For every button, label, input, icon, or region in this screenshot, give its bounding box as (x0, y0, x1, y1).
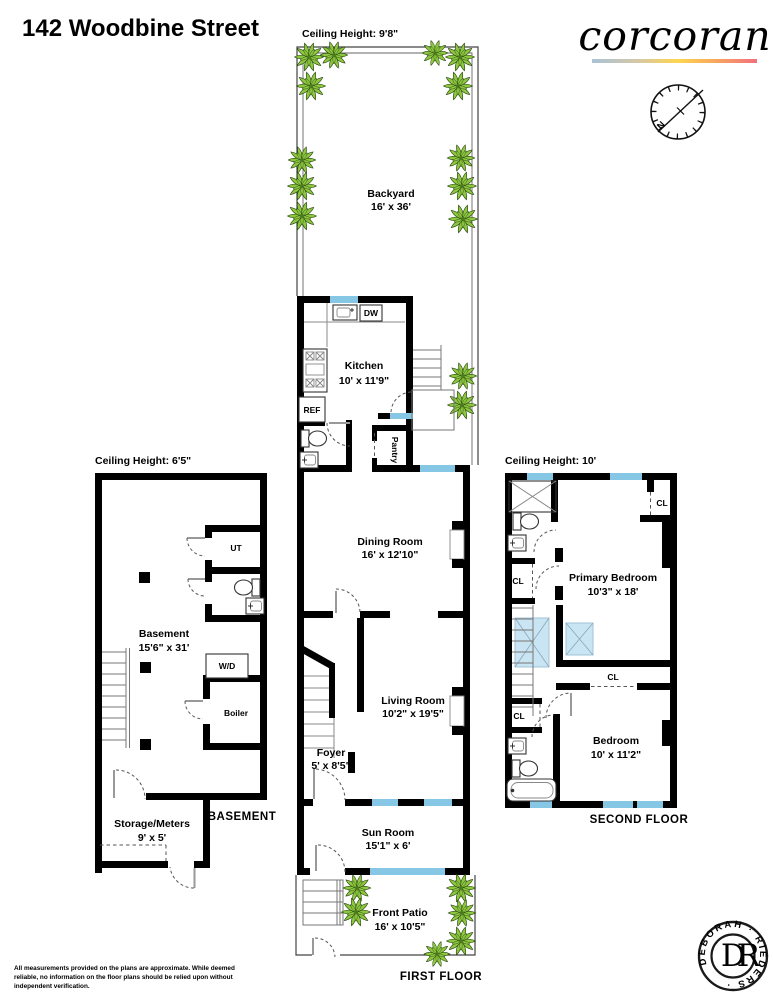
refrigerator-label: REF (304, 405, 321, 415)
basement-utility-room: UT (187, 538, 242, 556)
bush-icon (448, 899, 476, 926)
closet-hall-strip: CL (591, 672, 636, 687)
bush-icon (449, 205, 478, 234)
dishwasher-label: DW (364, 308, 379, 318)
bush-icon (342, 898, 371, 927)
bush-icon (424, 941, 450, 967)
compass-icon: N (651, 85, 705, 139)
closet-label: CL (513, 711, 524, 721)
floor-plan-page: 142 Woodbine Street corcoran N Ceiling H… (0, 0, 773, 1000)
bedroom-dims: 10' x 11'2" (591, 749, 641, 761)
first-floor-label: FIRST FLOOR (400, 971, 482, 983)
living-room-dims: 10'2" x 19'5" (382, 708, 444, 720)
brand-logo: corcoran (578, 12, 771, 60)
basement-floor-label: BASEMENT (208, 811, 277, 823)
toilet-icon (513, 513, 539, 530)
foyer-label: Foyer (317, 747, 346, 759)
first-floor-ceiling-label: Ceiling Height: 9'8" (302, 28, 398, 40)
toilet-icon (235, 579, 261, 596)
brand-stamp: DEBORAH · RIEDERS · DR (697, 919, 768, 990)
second-floor-plan: Ceiling Height: 10' (505, 455, 689, 826)
column (140, 739, 151, 750)
kitchen-dims: 10' x 11'9" (339, 375, 389, 387)
kitchen-label: Kitchen (345, 360, 384, 372)
foyer-dims: 5' x 8'5" (311, 760, 350, 772)
basement-bathroom (188, 579, 264, 614)
pantry-label: Pantry (390, 437, 400, 464)
backyard-fence-inner (303, 53, 472, 465)
washer-dryer-label: W/D (219, 661, 236, 671)
bathtub-icon (507, 779, 556, 801)
bedroom-label: Bedroom (593, 735, 639, 747)
primary-bedroom-label: Primary Bedroom (569, 572, 657, 584)
sink-icon (300, 452, 318, 468)
column (139, 572, 150, 583)
stove-icon (303, 349, 327, 392)
boiler-room: Boiler (185, 701, 249, 719)
primary-bedroom-door-arc (536, 566, 559, 589)
storage-room: Storage/Meters 9' x 5' (100, 770, 195, 888)
disclaimer-line-2: reliable, no information on the floor pl… (14, 974, 234, 981)
storage-dims: 9' x 5' (138, 832, 166, 844)
bush-icon (288, 172, 317, 201)
second-floor-ceiling-label: Ceiling Height: 10' (505, 455, 596, 467)
closet-label: CL (607, 672, 618, 682)
front-patio: Front Patio 16' x 10'5" (296, 874, 476, 967)
skylight-icon (515, 618, 549, 667)
storage-label: Storage/Meters (114, 818, 190, 830)
bush-icon (297, 72, 326, 101)
dishwasher-box: DW (360, 305, 382, 321)
sun-room-dims: 15'1" x 6' (365, 840, 410, 852)
toilet-icon (512, 760, 538, 777)
backyard-label: Backyard (367, 188, 414, 200)
shower-icon (509, 481, 556, 512)
boiler-label: Boiler (224, 708, 249, 718)
disclaimer-line-1: All measurements provided on the plans a… (14, 965, 235, 972)
patio-steps (303, 880, 343, 925)
sink-icon (508, 738, 526, 754)
utility-label: UT (230, 543, 242, 553)
bush-icon (288, 202, 317, 231)
floor-plan-canvas: 142 Woodbine Street corcoran N Ceiling H… (0, 0, 773, 1000)
bush-icon (343, 874, 371, 901)
bush-icon (447, 874, 476, 903)
first-floor-plan: DW REF (296, 296, 482, 983)
column (140, 662, 151, 673)
hall-door-arc (336, 589, 360, 613)
patio-gate-arc (315, 938, 335, 957)
bush-icon (449, 362, 477, 389)
second-floor-bathroom-top (508, 481, 556, 552)
bush-icon (288, 146, 316, 173)
closet-left-upper: CL (512, 564, 532, 598)
page-title: 142 Woodbine Street (22, 15, 259, 42)
toilet-icon (301, 430, 327, 447)
living-room-label: Living Room (381, 695, 445, 707)
stairs-basement (102, 648, 130, 748)
pantry: Pantry (375, 433, 401, 463)
basement-room-dims: 15'6" x 31' (139, 642, 190, 654)
bathroom-door-arc (532, 715, 554, 737)
kitchen-sink-icon (333, 305, 357, 320)
second-floor-label: SECOND FLOOR (590, 814, 689, 826)
dining-room-label: Dining Room (357, 536, 422, 548)
basement-plan: Ceiling Height: 6'5" UT (95, 455, 276, 888)
backyard-dims: 16' x 36' (371, 201, 411, 213)
deck-stairs (412, 345, 454, 430)
disclaimer-line-3: independent verification. (14, 983, 90, 990)
front-door-arc (316, 769, 345, 800)
refrigerator-box: REF (299, 397, 325, 422)
washer-dryer-box: W/D (206, 654, 248, 678)
front-patio-label: Front Patio (372, 907, 427, 919)
bush-icon (444, 72, 473, 101)
skylight-icon (566, 623, 593, 655)
bush-icon (447, 927, 476, 956)
closet-top-right: CL (651, 492, 668, 515)
sink-icon (246, 598, 264, 614)
primary-bedroom-dims: 10'3" x 18' (588, 586, 639, 598)
basement-ceiling-label: Ceiling Height: 6'5" (95, 455, 191, 467)
first-floor-bathroom (300, 423, 350, 468)
closet-label: CL (656, 498, 667, 508)
sun-room-label: Sun Room (362, 827, 415, 839)
dining-room-dims: 16' x 12'10" (362, 549, 419, 561)
closet-label: CL (512, 576, 523, 586)
stairs-first-floor (302, 645, 335, 758)
brand-gradient-bar (592, 59, 757, 63)
basement-room-label: Basement (139, 628, 190, 640)
bush-icon (422, 40, 448, 66)
bush-icon (320, 41, 348, 68)
sink-icon (508, 535, 526, 551)
front-patio-dims: 16' x 10'5" (375, 921, 426, 933)
sun-room-door-arc (318, 845, 345, 872)
bathroom-door-arc (534, 530, 556, 552)
bush-icon (447, 144, 475, 171)
